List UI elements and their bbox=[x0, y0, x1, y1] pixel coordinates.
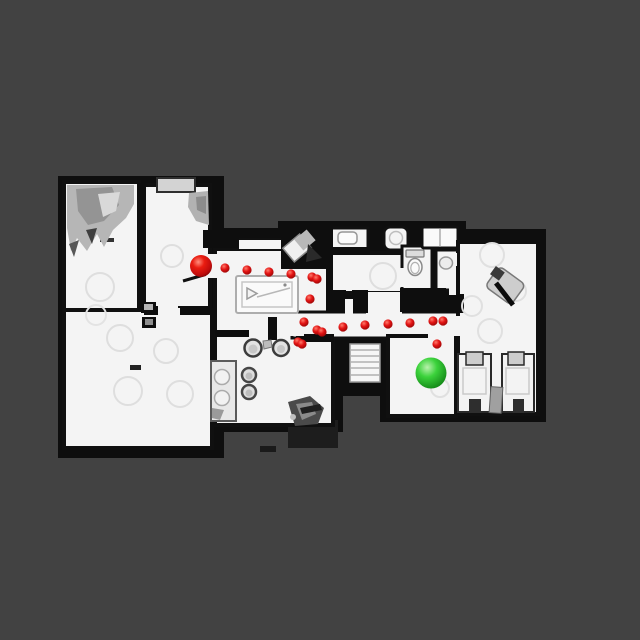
path-waypoint-dot bbox=[286, 269, 295, 278]
wall-b-bottom-right bbox=[178, 306, 210, 315]
path-waypoint-dot bbox=[432, 339, 441, 348]
gap-hall-door bbox=[345, 299, 353, 314]
dining-stool-center bbox=[277, 345, 285, 353]
dining-small-item bbox=[263, 340, 272, 349]
path-waypoint-dot bbox=[428, 316, 437, 325]
path-waypoint-dot bbox=[312, 274, 321, 283]
wall-d-stub-left bbox=[215, 330, 249, 337]
family-stool-center bbox=[246, 373, 253, 380]
door-block-upper-inner bbox=[144, 304, 153, 310]
path-waypoint-dot bbox=[360, 320, 369, 329]
sofa-cushion bbox=[215, 391, 230, 406]
path-waypoint-dot bbox=[438, 316, 447, 325]
path-waypoint-dot bbox=[299, 317, 308, 326]
wall-corridor-top bbox=[203, 230, 239, 248]
mark-room-c bbox=[130, 365, 141, 370]
nub-right-wall-2 bbox=[449, 279, 456, 295]
path-waypoint-dot bbox=[305, 294, 314, 303]
shelf-room-b bbox=[157, 178, 195, 192]
start-marker bbox=[190, 255, 212, 277]
floor-hall bbox=[330, 253, 406, 293]
toilet-tank bbox=[406, 250, 424, 257]
path-waypoint-dot bbox=[242, 265, 251, 274]
gap-toilet-door bbox=[399, 268, 408, 287]
path-waypoint-dot bbox=[317, 327, 326, 336]
dining-stool-center bbox=[249, 345, 258, 354]
gap-east-room-door bbox=[428, 332, 454, 341]
wall-d-stub-mid bbox=[268, 317, 277, 340]
walls-floors-furniture-layer bbox=[58, 176, 546, 458]
floor-top-sliver bbox=[238, 239, 282, 250]
family-stool-center bbox=[246, 390, 253, 397]
path-waypoint-dot bbox=[264, 267, 273, 276]
path-waypoint-dot bbox=[405, 318, 414, 327]
sofa-cushion bbox=[215, 370, 230, 385]
closet-fixture bbox=[440, 257, 453, 269]
gap-right-room-door bbox=[453, 316, 465, 336]
armchair-headrest bbox=[508, 352, 524, 365]
armchair-headrest bbox=[466, 352, 483, 365]
gap-b-bottom-door bbox=[158, 308, 180, 316]
path-waypoint-dot bbox=[297, 339, 306, 348]
path-waypoint-dot bbox=[220, 263, 229, 272]
armchair-notch bbox=[513, 399, 524, 413]
wall-hall-s2 bbox=[352, 290, 368, 313]
floor-room-c bbox=[64, 310, 212, 448]
armchair-notch bbox=[469, 399, 481, 413]
floor-hall-corridor-gap bbox=[366, 292, 402, 314]
floorplan-scene bbox=[0, 0, 640, 640]
wall-hall-s3 bbox=[400, 288, 446, 312]
door-block-lower-inner bbox=[145, 319, 153, 325]
path-waypoint-dot bbox=[338, 322, 347, 331]
wall-a-b bbox=[137, 183, 146, 310]
toilet-bowl bbox=[408, 259, 422, 276]
floorplan-map bbox=[0, 0, 640, 640]
lounge-chair-light bbox=[290, 414, 296, 420]
sink-counter bbox=[338, 232, 357, 244]
path-waypoint-dot bbox=[383, 319, 392, 328]
goal-marker bbox=[416, 358, 447, 389]
mark-room-c-bottom bbox=[260, 446, 276, 452]
between-chairs-item bbox=[489, 387, 503, 414]
pool-table-ball bbox=[283, 283, 286, 286]
wall-hall-s1 bbox=[326, 290, 346, 313]
